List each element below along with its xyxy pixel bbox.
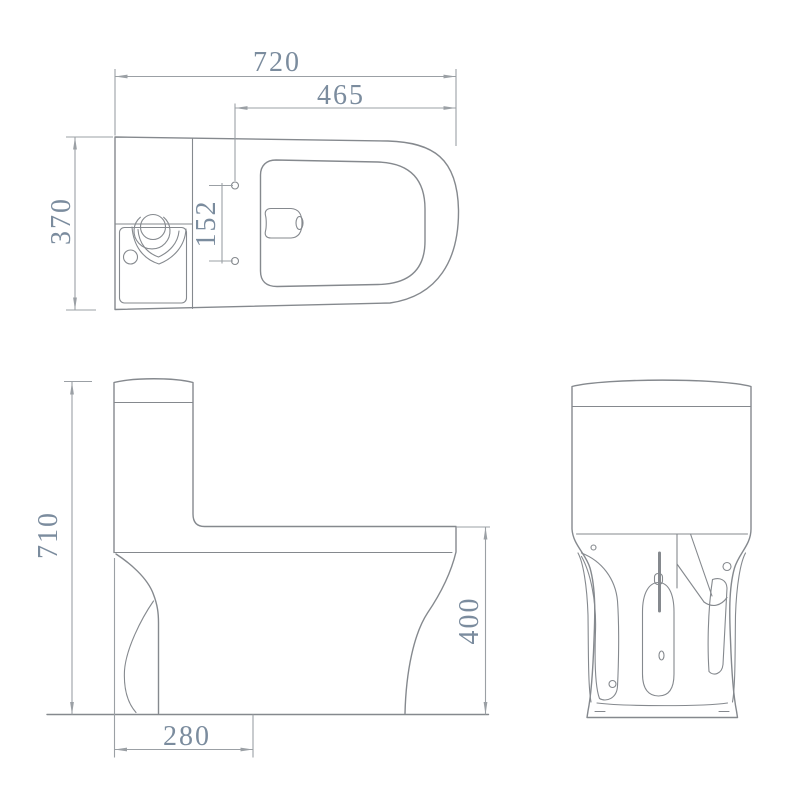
rear-inner-side-right — [733, 553, 746, 702]
rear-trap-connector-curve — [704, 598, 727, 606]
side-trap-curve — [124, 601, 153, 713]
rear-bottom-left-hole-circle — [609, 681, 616, 688]
rear-capsule-slot — [659, 651, 664, 660]
dim-label-465: 465 — [317, 80, 365, 111]
technical-drawing-svg: 720 465 370 152 710 400 — [0, 0, 800, 800]
rear-left-panel-curve — [582, 553, 619, 700]
rear-side-hole-circle — [723, 563, 731, 571]
top-view-outline-path — [115, 137, 459, 310]
rear-trap-diagonal-1 — [677, 564, 704, 602]
dim-label-400: 400 — [454, 597, 485, 645]
dim-label-152: 152 — [191, 200, 222, 248]
rear-outline-path — [572, 380, 751, 717]
side-bowl-front-curve — [116, 554, 159, 714]
rear-inner-bottom-line — [597, 703, 728, 706]
rear-top-left-hole-circle — [591, 545, 596, 550]
dim-label-370: 370 — [46, 197, 77, 245]
top-view — [115, 137, 459, 310]
rear-right-band — [708, 579, 727, 674]
rear-view — [572, 380, 751, 717]
side-view — [47, 379, 489, 715]
dim-label-710: 710 — [33, 511, 64, 559]
dimension-annotations: 720 465 370 152 710 400 — [33, 47, 490, 758]
drawing-canvas: 720 465 370 152 710 400 — [0, 0, 800, 800]
seat-opening-outline — [261, 160, 426, 287]
tank-inner-rect — [120, 228, 187, 304]
tank-small-hole-circle — [124, 250, 138, 264]
valve-shield-outer-curve — [132, 227, 186, 264]
valve-shield-inner-curve — [138, 230, 179, 258]
dim-label-280: 280 — [163, 721, 211, 752]
side-outline-path — [114, 379, 456, 714]
dim-label-720: 720 — [253, 47, 301, 78]
